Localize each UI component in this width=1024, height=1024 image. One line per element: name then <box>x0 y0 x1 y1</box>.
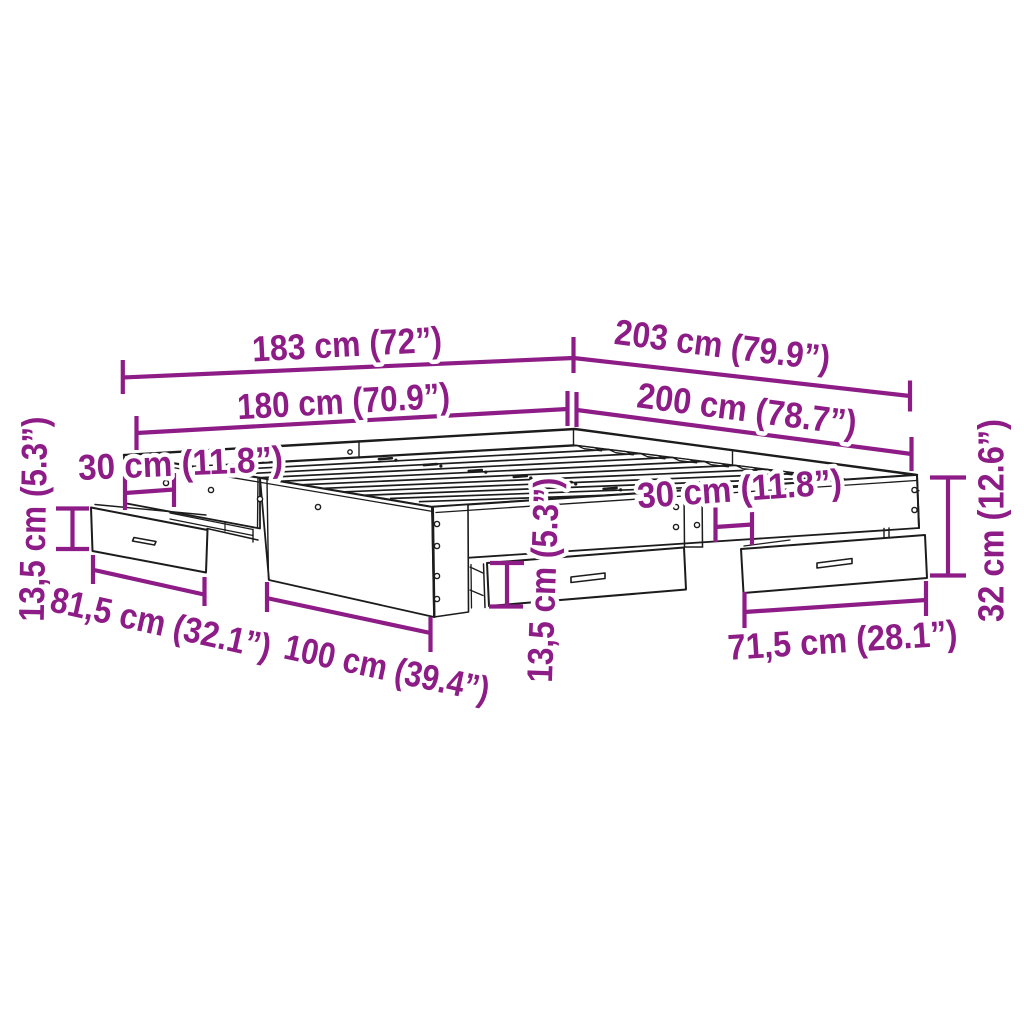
svg-text:13,5 cm (5.3”): 13,5 cm (5.3”) <box>11 416 56 622</box>
svg-text:32 cm (12.6”): 32 cm (12.6”) <box>971 419 1012 622</box>
svg-text:13,5 cm (5.3”): 13,5 cm (5.3”) <box>519 477 567 683</box>
